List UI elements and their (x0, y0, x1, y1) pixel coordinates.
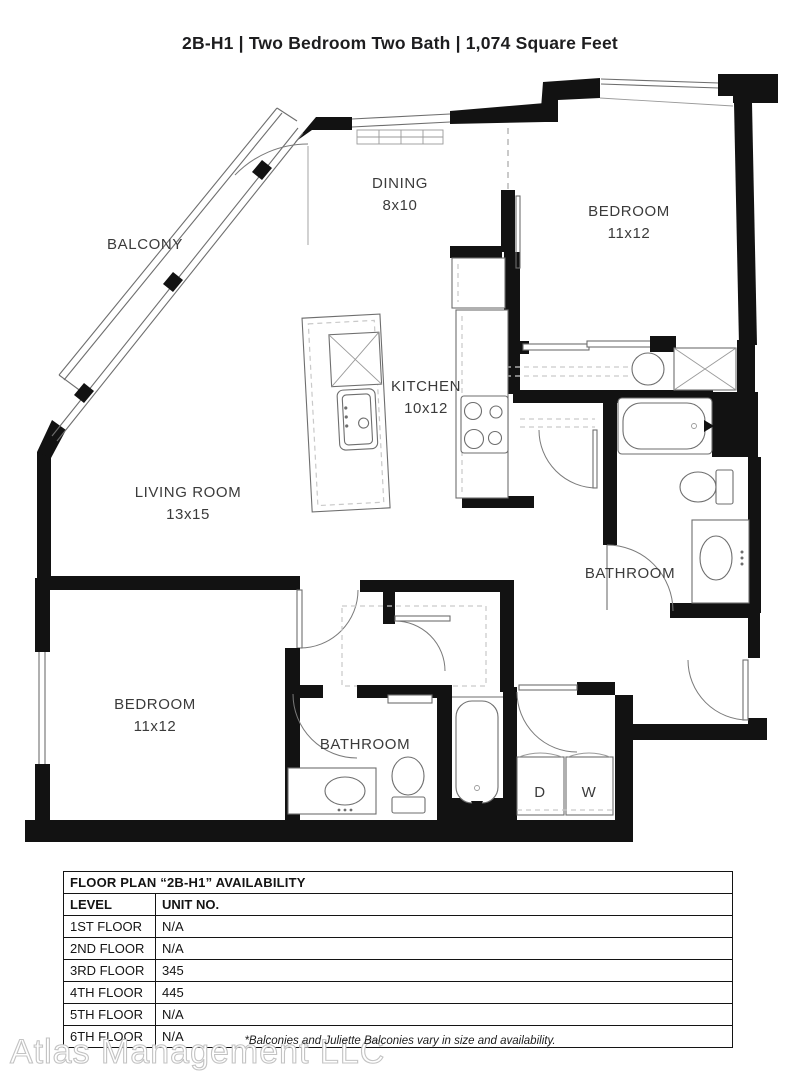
label-bedroom1-dims: 11x12 (608, 225, 651, 242)
label-bathroom1: BATHROOM (585, 565, 675, 582)
col-header-unit-no: UNIT NO. (156, 894, 733, 916)
label-bathroom2: BATHROOM (320, 736, 410, 753)
unit-cell: 445 (156, 982, 733, 1004)
label-dryer: D (534, 784, 545, 801)
label-kitchen-name: KITCHEN (391, 378, 461, 395)
level-cell: 5TH FLOOR (64, 1004, 156, 1026)
label-balcony: BALCONY (107, 236, 183, 253)
laundry-appliances (517, 753, 613, 815)
floor-plan-drawing: BALCONY DINING 8x10 BEDROOM 11x12 KITCHE… (0, 0, 800, 860)
table-row: 3RD FLOOR 345 (64, 960, 733, 982)
label-dining-name: DINING (372, 175, 428, 192)
table-row: 2ND FLOOR N/A (64, 938, 733, 960)
label-living-name: LIVING ROOM (135, 484, 242, 501)
level-cell: 2ND FLOOR (64, 938, 156, 960)
bathroom2-fixtures (288, 695, 503, 814)
table-row: 1ST FLOOR N/A (64, 916, 733, 938)
table-row: 5TH FLOOR N/A (64, 1004, 733, 1026)
unit-cell: N/A (156, 916, 733, 938)
label-bedroom2-name: BEDROOM (114, 696, 196, 713)
level-cell: 3RD FLOOR (64, 960, 156, 982)
availability-table: FLOOR PLAN “2B-H1” AVAILABILITY LEVEL UN… (63, 871, 733, 1048)
level-cell: 1ST FLOOR (64, 916, 156, 938)
table-row: 4TH FLOOR 445 (64, 982, 733, 1004)
label-kitchen-dims: 10x12 (404, 400, 448, 417)
unit-cell: 345 (156, 960, 733, 982)
label-living-dims: 13x15 (166, 506, 210, 523)
unit-cell: N/A (156, 938, 733, 960)
label-dining-dims: 8x10 (383, 197, 418, 214)
label-washer: W (582, 784, 597, 801)
floor-plan-page: 2B-H1 | Two Bedroom Two Bath | 1,074 Squ… (0, 0, 800, 1080)
label-bedroom2-dims: 11x12 (134, 718, 177, 735)
kitchen-island (302, 314, 390, 512)
unit-cell: N/A (156, 1004, 733, 1026)
col-header-level: LEVEL (64, 894, 156, 916)
level-cell: 4TH FLOOR (64, 982, 156, 1004)
label-bedroom1-name: BEDROOM (588, 203, 670, 220)
availability-table-title: FLOOR PLAN “2B-H1” AVAILABILITY (64, 872, 733, 894)
balcony-structure (52, 108, 308, 441)
footnote: *Balconies and Juliette Balconies vary i… (0, 1035, 800, 1047)
